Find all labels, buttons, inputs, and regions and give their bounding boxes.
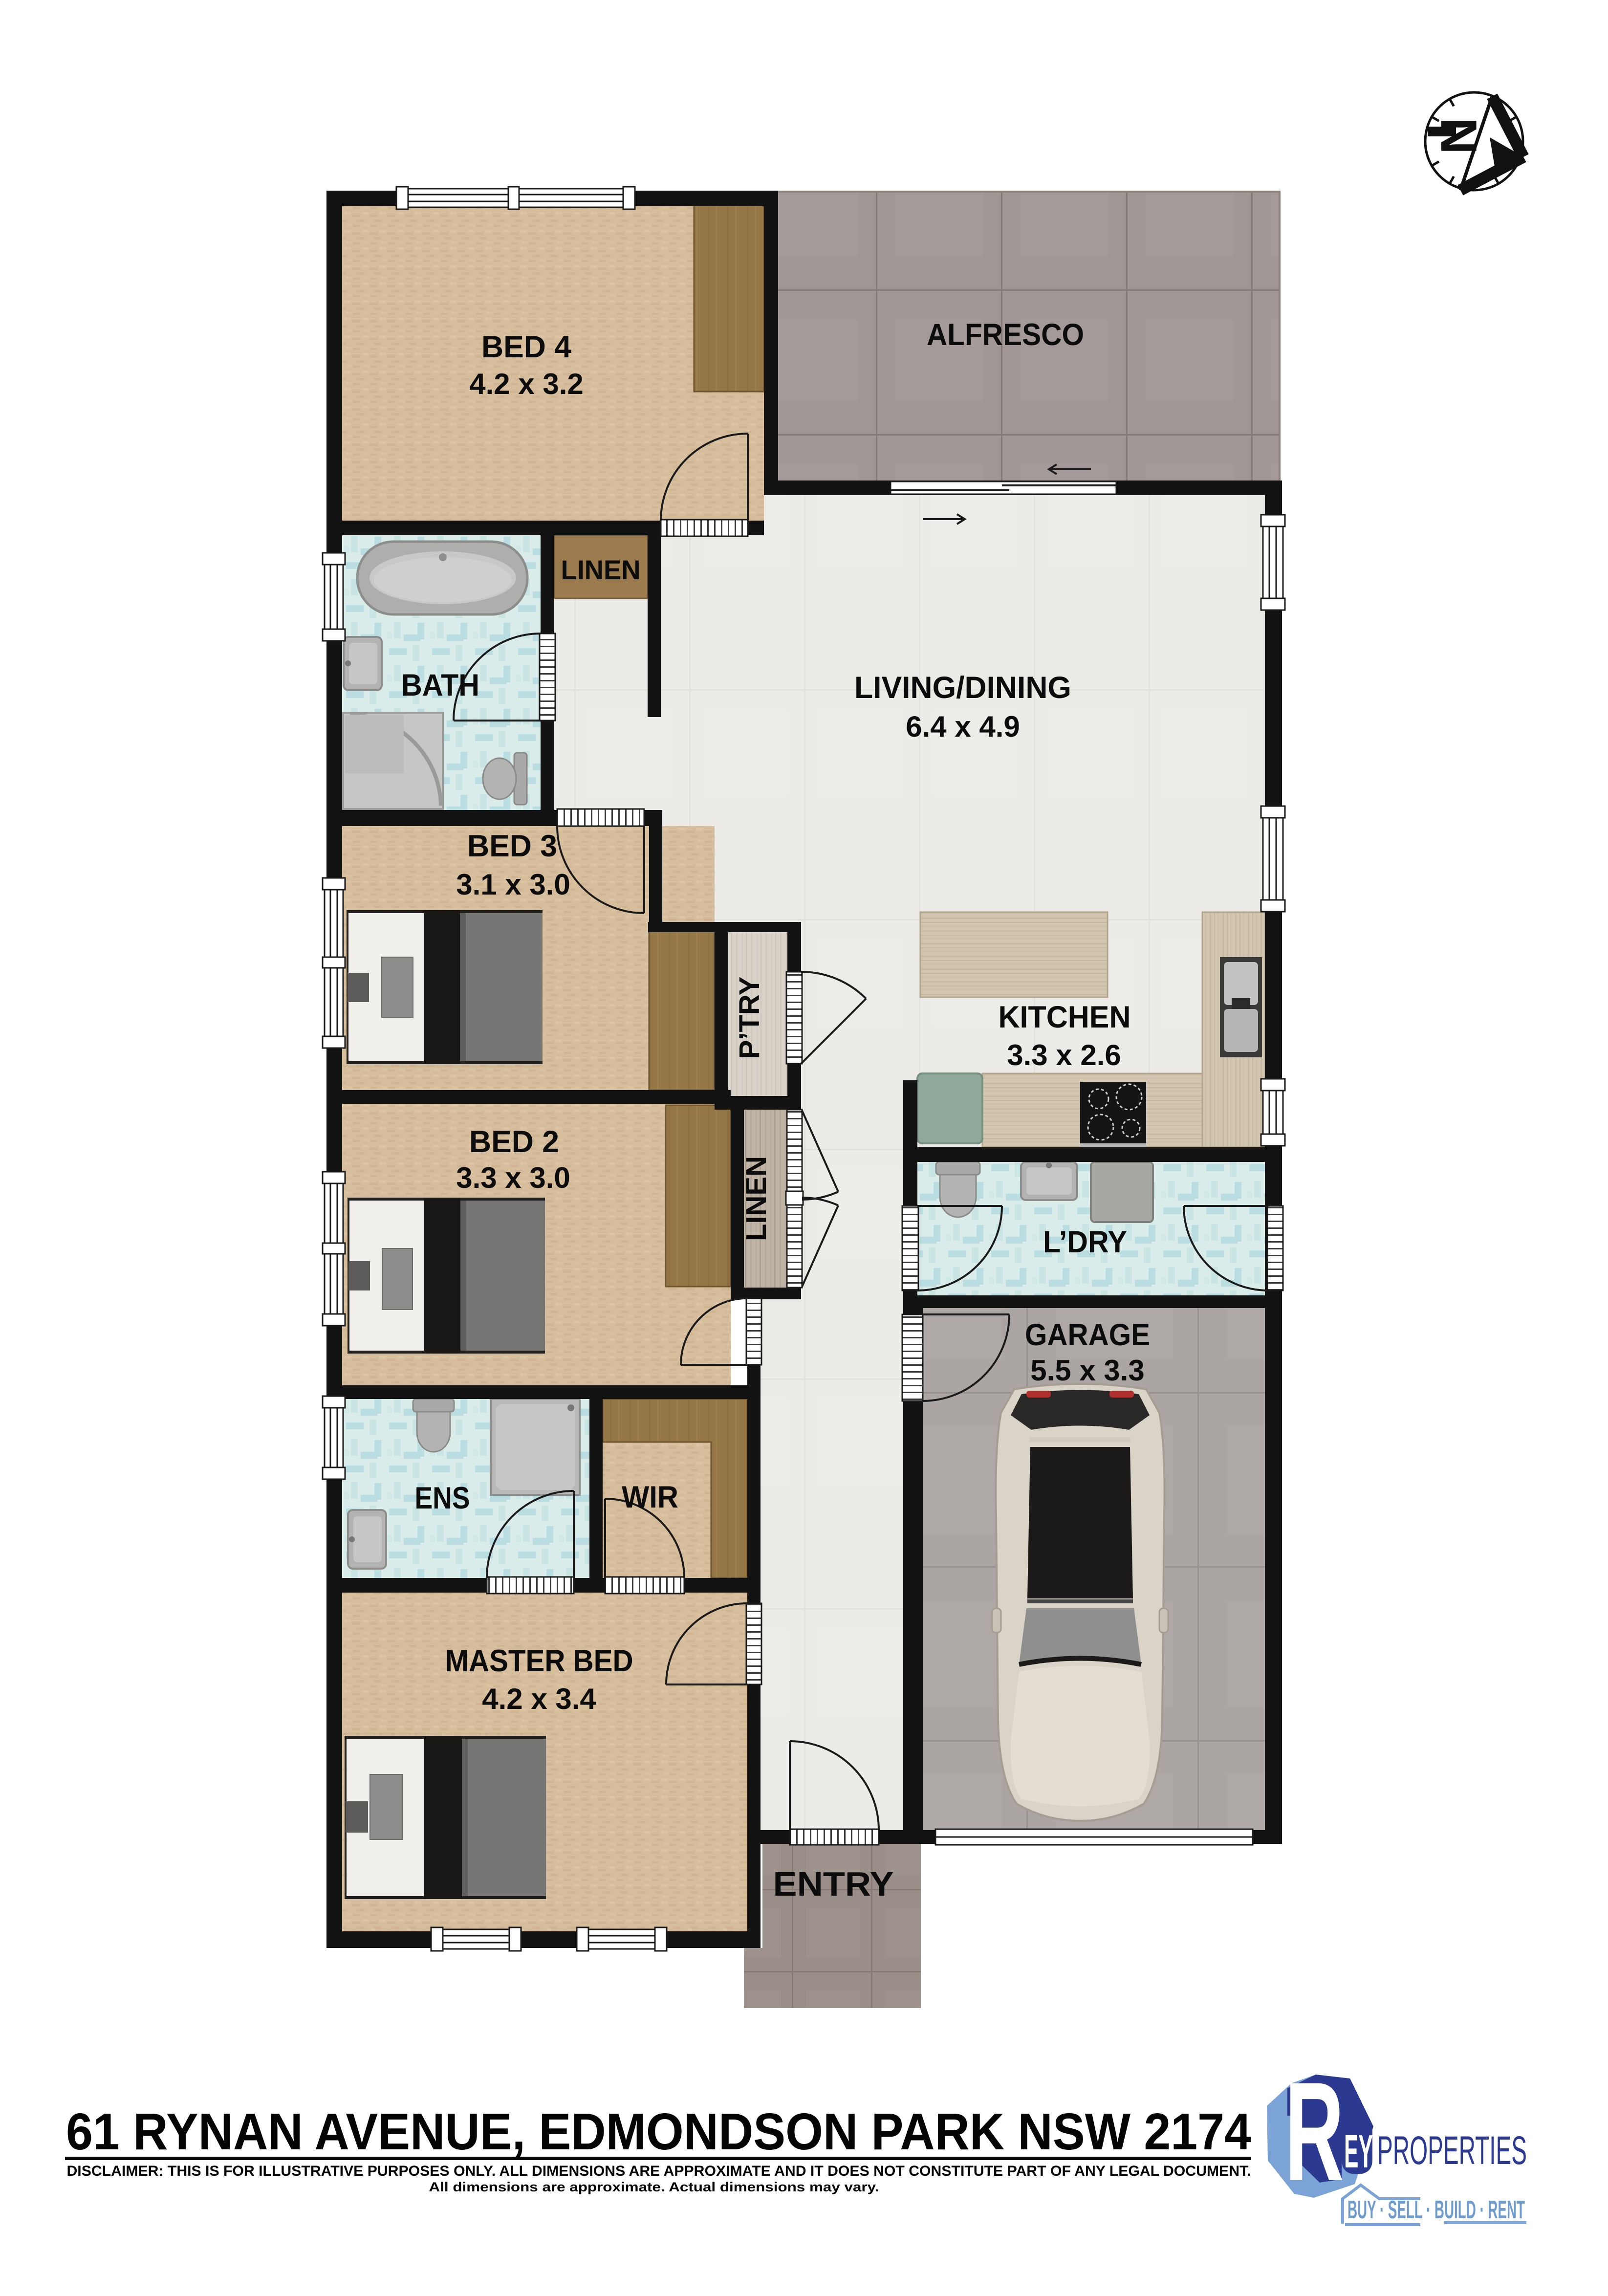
svg-text:KITCHEN: KITCHEN [999,1000,1131,1034]
svg-text:BED 2: BED 2 [469,1125,559,1159]
svg-text:WIR: WIR [622,1480,678,1514]
svg-text:BATH: BATH [401,668,479,702]
svg-text:3.3 x 3.0: 3.3 x 3.0 [456,1161,570,1194]
svg-text:4.2 x 3.2: 4.2 x 3.2 [469,368,584,400]
svg-text:4.2 x 3.4: 4.2 x 3.4 [482,1683,596,1715]
svg-text:GARAGE: GARAGE [1025,1318,1150,1352]
svg-text:L’DRY: L’DRY [1043,1225,1127,1259]
svg-text:R: R [1285,2053,1344,2210]
svg-text:ENS: ENS [415,1481,470,1515]
svg-text:MASTER BED: MASTER BED [445,1644,633,1678]
svg-text:LIVING/DINING: LIVING/DINING [854,671,1071,705]
svg-text:All dimensions are approximate: All dimensions are approximate. Actual d… [429,2180,879,2194]
svg-text:ENTRY: ENTRY [773,1865,894,1903]
svg-text:P’TRY: P’TRY [734,977,765,1059]
svg-text:61 RYNAN AVENUE, EDMONDSON PAR: 61 RYNAN AVENUE, EDMONDSON PARK NSW 2174 [66,2103,1251,2161]
svg-text:BED 3: BED 3 [467,829,557,863]
svg-text:BUY · SELL · BUILD · RENT: BUY · SELL · BUILD · RENT [1347,2196,1525,2224]
svg-text:LINEN: LINEN [561,554,641,585]
svg-text:6.4 x 4.9: 6.4 x 4.9 [906,710,1020,743]
svg-text:LINEN: LINEN [740,1156,772,1241]
svg-text:ALFRESCO: ALFRESCO [927,318,1084,352]
svg-text:DISCLAIMER: THIS IS FOR ILLUST: DISCLAIMER: THIS IS FOR ILLUSTRATIVE PUR… [67,2163,1251,2179]
svg-text:BED 4: BED 4 [481,330,571,364]
svg-text:PROPERTIES: PROPERTIES [1377,2128,1527,2173]
svg-text:3.3 x 2.6: 3.3 x 2.6 [1007,1039,1121,1071]
svg-text:EY: EY [1344,2125,1373,2178]
svg-text:3.1 x 3.0: 3.1 x 3.0 [456,868,570,901]
svg-text:5.5 x 3.3: 5.5 x 3.3 [1030,1354,1145,1387]
